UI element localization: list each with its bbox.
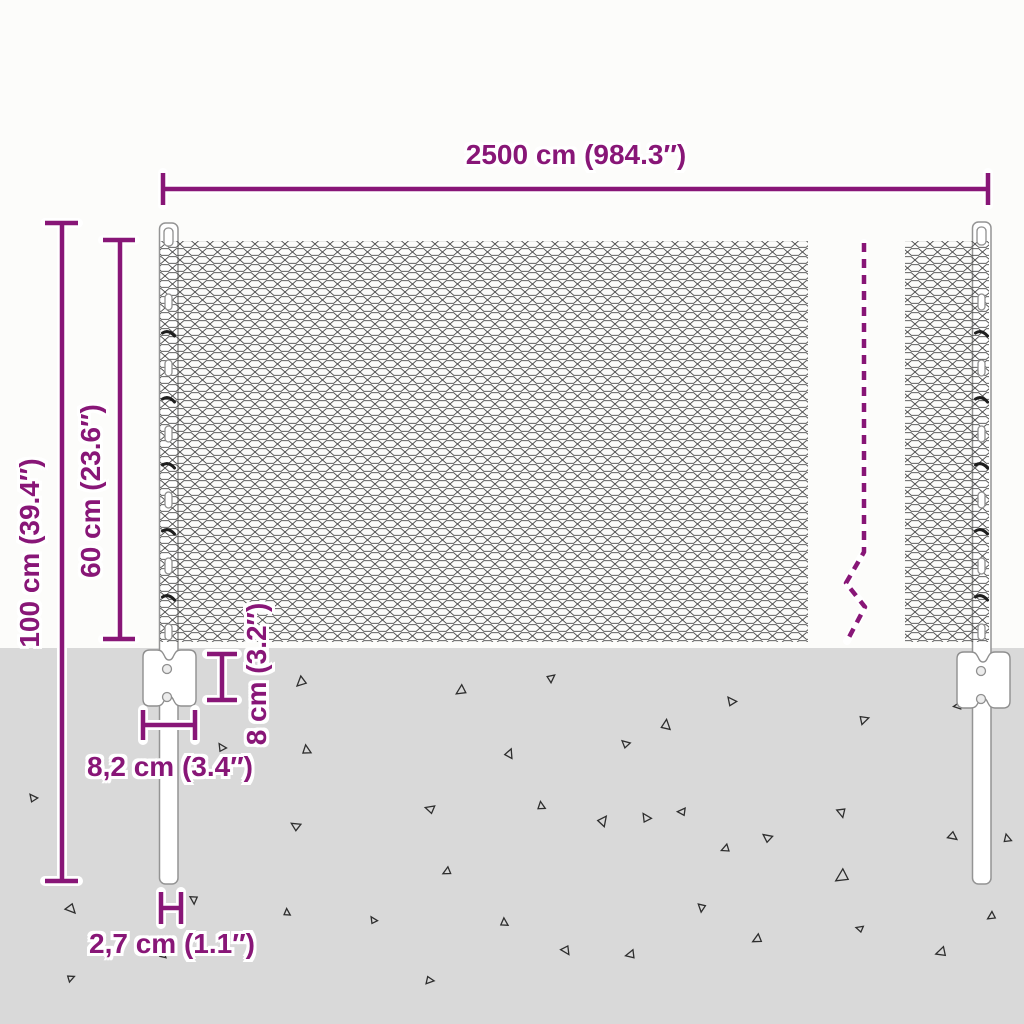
fence-mesh-right [905,241,989,642]
anchor-width-dimension-label: 8,2 cm (3.4″) [20,750,320,784]
total-height-dimension-label: 100 cm (39.4″) [13,403,47,703]
diagram-canvas: 2500 cm (984.3″) 100 cm (39.4″) 60 cm (2… [0,0,1024,1024]
length-break-line [846,243,865,641]
width-dimension-label: 2500 cm (984.3″) [326,138,826,172]
mesh-height-dimension-label: 60 cm (23.6″) [74,341,108,641]
post-diameter-dimension-label: 2,7 cm (1.1″) [22,927,322,961]
width-dimension-line [163,173,988,205]
